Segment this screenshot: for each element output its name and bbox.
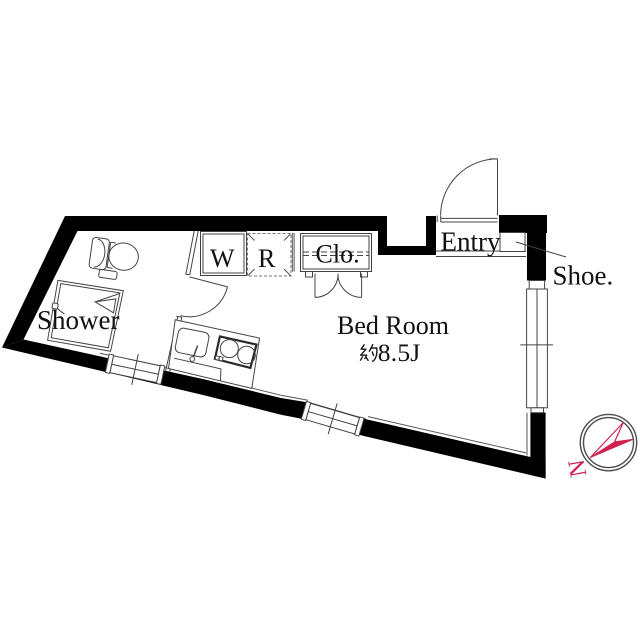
svg-text:Clo.: Clo. [316, 240, 360, 269]
svg-text:Bed Room: Bed Room [337, 311, 449, 340]
svg-text:W: W [210, 244, 235, 273]
svg-text:R: R [258, 244, 276, 273]
svg-text:Shower: Shower [37, 305, 120, 335]
svg-text:Shoe.: Shoe. [553, 261, 614, 291]
svg-text:8.5J: 8.5J [378, 338, 421, 367]
svg-text:Entry: Entry [441, 227, 501, 257]
